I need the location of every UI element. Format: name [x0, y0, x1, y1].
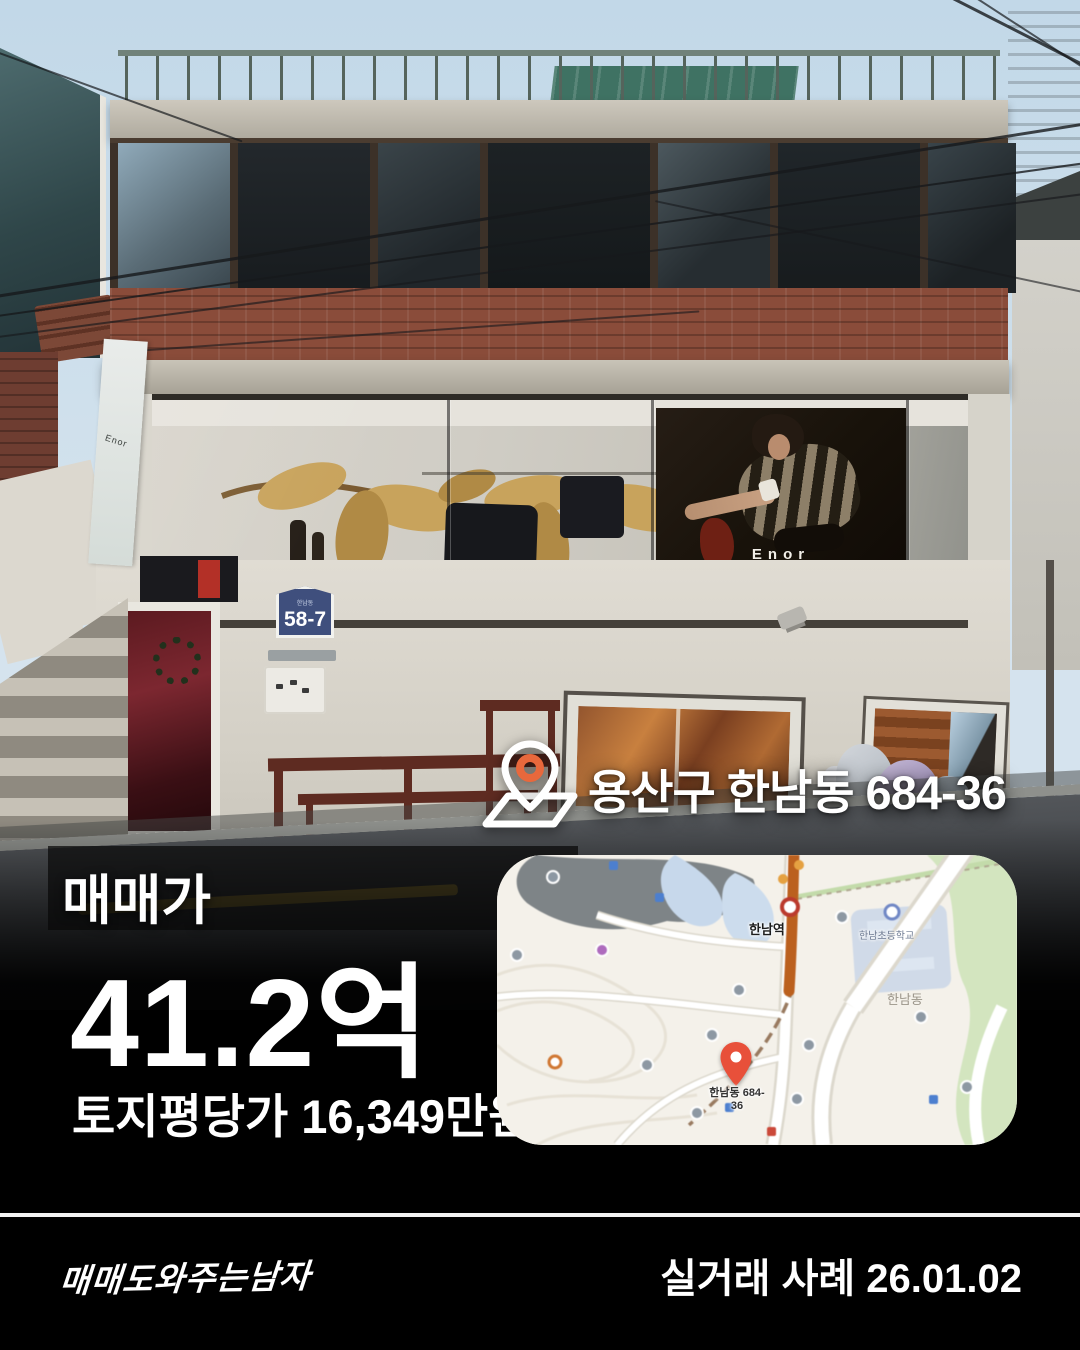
window-pane [650, 143, 778, 293]
storefront-base-trim [152, 620, 968, 628]
red-entry-door [118, 602, 220, 840]
window-pane [920, 143, 1016, 293]
address-plate: 한남동 58-7 [276, 586, 334, 638]
signboard-red-panel [198, 560, 220, 598]
location-text: 용산구 한남동 684-36 [588, 754, 1006, 823]
window-pane [230, 143, 378, 293]
roof-slab [110, 100, 1008, 138]
brick-band [110, 288, 1008, 362]
window-pane [370, 143, 488, 293]
price-value: 41.2억 [70, 922, 430, 1102]
model-face [768, 434, 790, 460]
wall-vent [268, 650, 336, 661]
fashion-poster: Enor [656, 408, 906, 574]
window-pane [110, 143, 238, 293]
door-signboard [140, 556, 238, 602]
concrete-ledge [103, 360, 1009, 394]
map-pin-caption: 한남동 684- 36 [679, 1087, 795, 1113]
door-wreath [153, 637, 201, 685]
map-pin-icon [478, 738, 582, 830]
map-station-label: 한남역 [749, 919, 785, 938]
map-district-label: 한남동 [887, 989, 923, 1008]
hanging-garment [560, 476, 624, 538]
brand-signature: 매매도와주는남자 [58, 1249, 313, 1302]
address-plate-number: 58-7 [284, 608, 326, 632]
side-banner-text: Enor [104, 433, 129, 450]
footer-divider [0, 1213, 1080, 1217]
meter-box [264, 666, 326, 714]
map-school-label: 한남초등학교 [859, 927, 914, 942]
map-destination-pin-icon [719, 1041, 753, 1087]
location-row: 용산구 한남동 684-36 [470, 736, 1030, 832]
address-plate-caption: 한남동 [279, 598, 331, 607]
map-card: 한남역 한남동 한남초등학교 한남동 684- 36 [497, 855, 1017, 1145]
deal-date-note: 실거래 사례 26.01.02 [660, 1246, 1022, 1304]
second-floor-windows [110, 138, 1008, 300]
land-price-per-pyeong: 토지평당가 16,349만원 [72, 1078, 532, 1147]
real-estate-post: Enor 한남동 58-7 [0, 0, 1080, 1350]
